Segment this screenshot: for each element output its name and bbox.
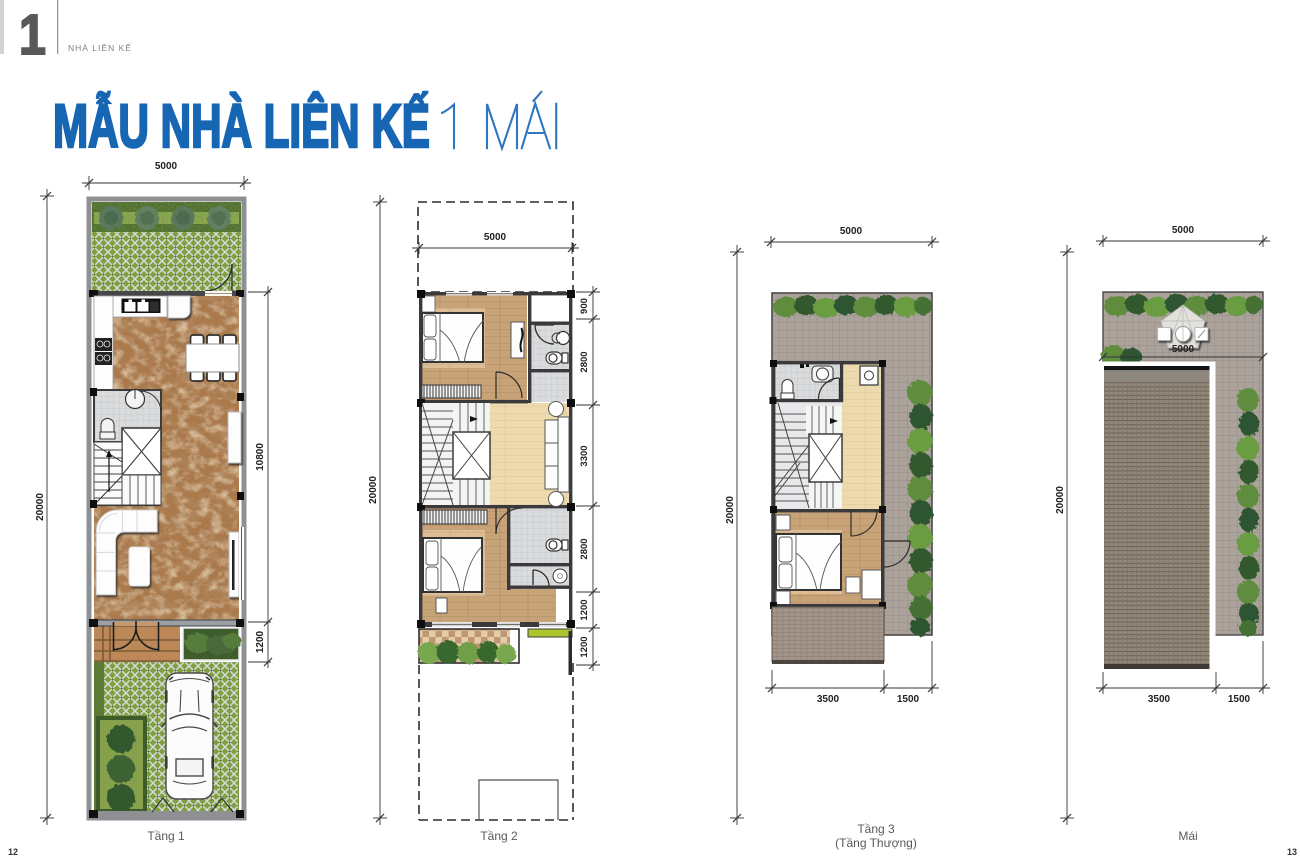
- svg-text:5000: 5000: [484, 232, 507, 243]
- svg-text:5000: 5000: [840, 226, 863, 237]
- svg-text:2800: 2800: [579, 351, 590, 372]
- svg-text:900: 900: [579, 298, 590, 314]
- svg-text:20000: 20000: [35, 493, 46, 521]
- svg-text:1: 1: [19, 3, 46, 67]
- svg-text:12: 12: [8, 847, 18, 857]
- svg-text:1200: 1200: [579, 599, 590, 620]
- svg-text:20000: 20000: [1055, 486, 1066, 514]
- svg-text:1500: 1500: [1228, 694, 1251, 705]
- svg-text:Mái: Mái: [1178, 829, 1197, 843]
- svg-text:3300: 3300: [579, 445, 590, 466]
- svg-text:13: 13: [1287, 847, 1297, 857]
- svg-text:Tầng 3: Tầng 3: [857, 822, 895, 836]
- svg-text:Tầng 1: Tầng 1: [147, 829, 185, 843]
- svg-text:(Tầng Thượng): (Tầng Thượng): [835, 836, 917, 850]
- svg-text:NHÀ LIÊN KẾ: NHÀ LIÊN KẾ: [68, 43, 132, 53]
- svg-text:1200: 1200: [579, 636, 590, 657]
- svg-text:10800: 10800: [255, 443, 266, 471]
- svg-text:1200: 1200: [255, 630, 266, 653]
- svg-text:20000: 20000: [725, 496, 736, 524]
- svg-text:20000: 20000: [368, 476, 379, 504]
- svg-text:MẪU NHÀ LIÊN KẾ: MẪU NHÀ LIÊN KẾ: [53, 92, 430, 161]
- svg-text:3500: 3500: [1148, 694, 1171, 705]
- svg-text:5000: 5000: [1172, 225, 1195, 236]
- svg-text:5000: 5000: [155, 161, 178, 172]
- svg-text:2800: 2800: [579, 538, 590, 559]
- svg-text:Tầng 2: Tầng 2: [480, 829, 518, 843]
- svg-text:5000: 5000: [1172, 344, 1195, 355]
- svg-text:1500: 1500: [897, 694, 920, 705]
- svg-text:3500: 3500: [817, 694, 840, 705]
